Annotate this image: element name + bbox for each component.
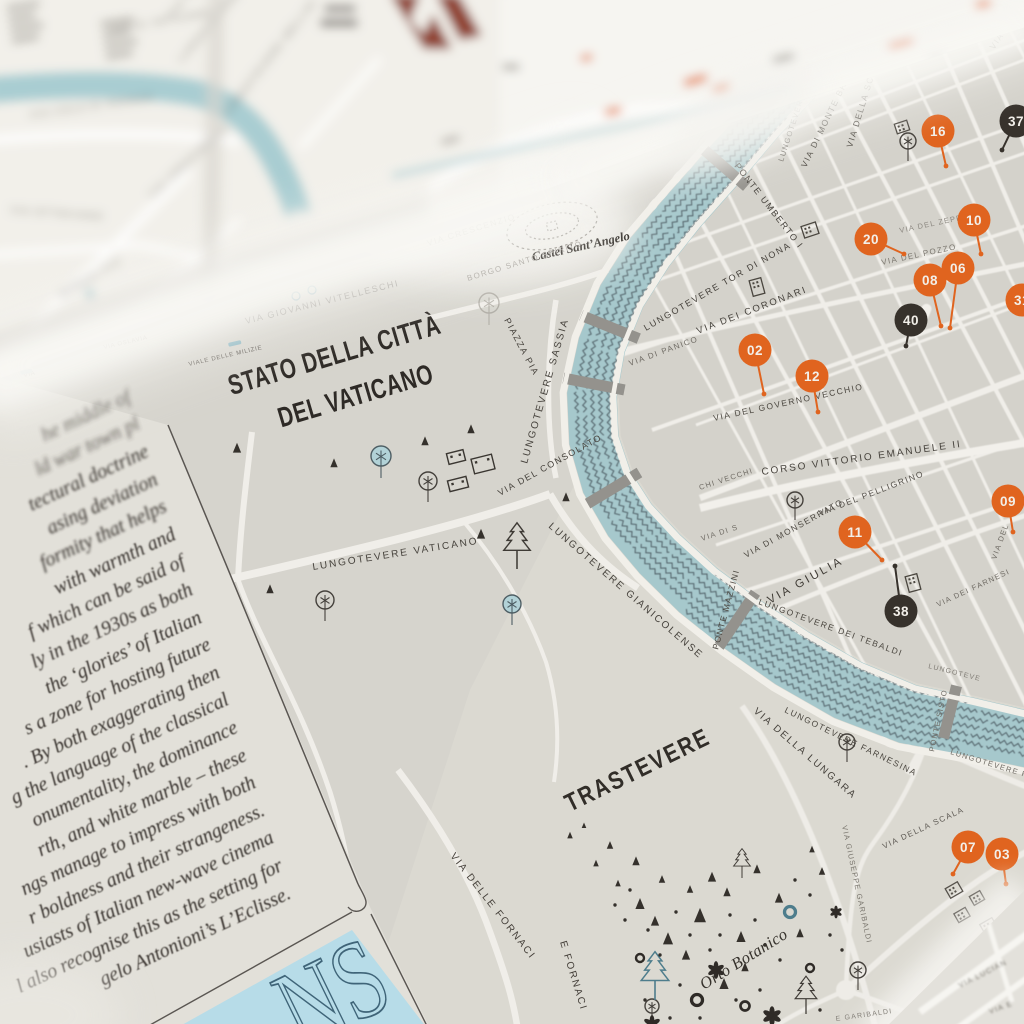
svg-text:06: 06 xyxy=(950,261,966,276)
svg-text:40: 40 xyxy=(903,313,919,328)
svg-text:07: 07 xyxy=(960,840,976,855)
svg-text:16: 16 xyxy=(930,124,946,139)
svg-text:11: 11 xyxy=(847,525,862,540)
svg-text:31: 31 xyxy=(1014,293,1024,308)
svg-text:10: 10 xyxy=(966,213,982,228)
svg-text:20: 20 xyxy=(863,232,879,247)
svg-text:38: 38 xyxy=(893,604,909,619)
svg-text:03: 03 xyxy=(994,847,1010,862)
svg-text:37: 37 xyxy=(1008,114,1024,129)
svg-text:08: 08 xyxy=(922,273,938,288)
svg-text:12: 12 xyxy=(804,369,820,384)
svg-text:02: 02 xyxy=(747,343,763,358)
svg-text:09: 09 xyxy=(1000,494,1016,509)
